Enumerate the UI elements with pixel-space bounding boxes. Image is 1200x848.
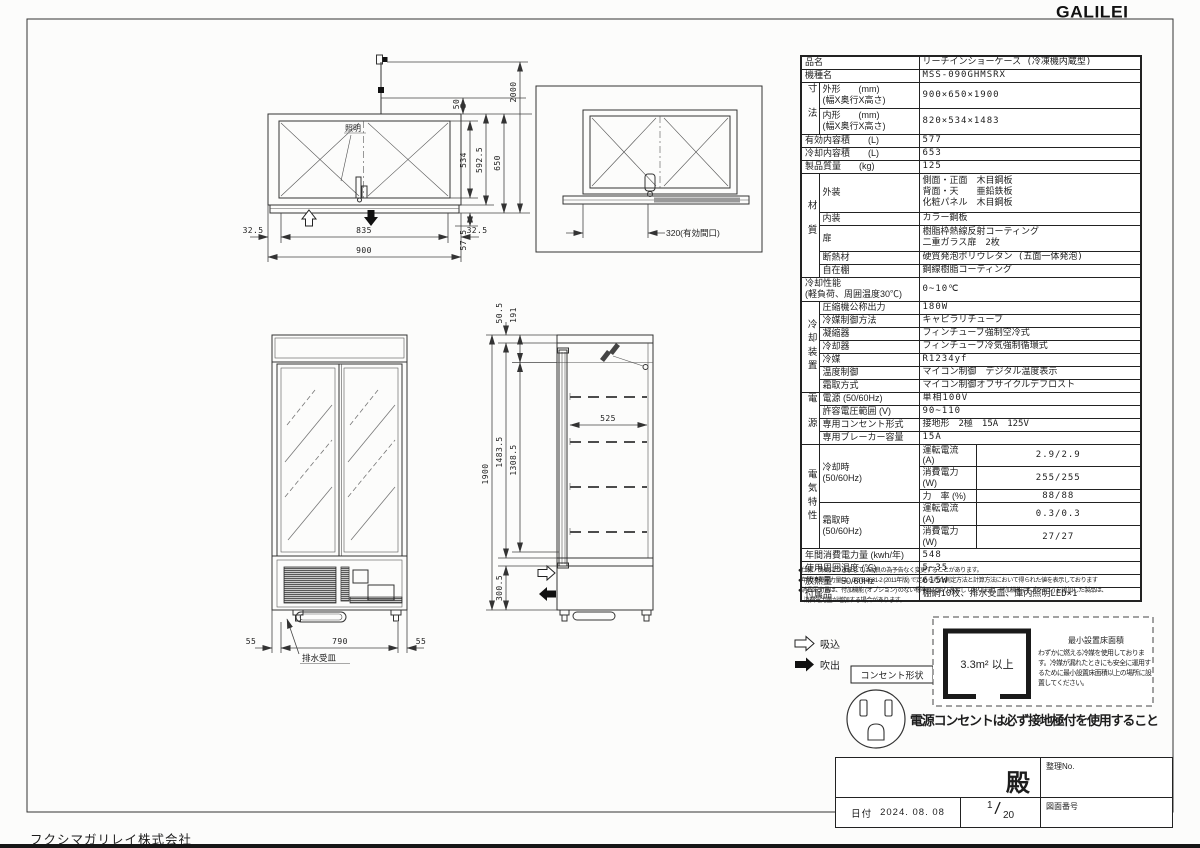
dim-50: 50 — [452, 99, 461, 109]
spec-power2-label: 消費電力 (W) — [919, 526, 976, 549]
dim-534: 534 — [459, 152, 468, 168]
dim-835: 835 — [356, 226, 372, 235]
spec-refrigerant-label: 冷媒 — [819, 353, 919, 366]
spec-weight-label: 製品質量 (kg) — [801, 160, 919, 173]
spec-power1-value: 255/255 — [976, 467, 1141, 490]
spec-refrigerant-control-label: 冷媒制御方法 — [819, 314, 919, 327]
plug-symbol-icon — [377, 55, 383, 64]
spec-evaporator-value: フィンチューブ冷気強制循環式 — [919, 340, 1141, 353]
control-number-label: 整理No. — [1041, 758, 1172, 798]
spec-run-current2-label: 運転電流 (A) — [919, 503, 976, 526]
spec-group-electrical: 電気特性 — [801, 444, 819, 549]
dim-32-5-right: 32.5 — [467, 226, 488, 235]
spec-insulation-label: 断熱材 — [819, 251, 919, 264]
side-view: 525 50.5 191 1900 1483.5 1308.5 300.5 — [481, 303, 653, 621]
dim-55-right: 55 — [416, 637, 426, 646]
sheet-slash: / — [994, 799, 1001, 819]
drain-pan-label: 排水受皿 — [302, 653, 337, 663]
spec-refrigerant-value: R1234yf — [919, 353, 1141, 366]
spec-group-cooling-unit: 冷却装置 — [801, 301, 819, 392]
spec-defrost-value: マイコン制御オフサイクルデフロスト — [919, 379, 1141, 392]
spec-cooling-volume-label: 冷却内容積 (L) — [801, 147, 919, 160]
note-line: ●消費電力量は、付加機能 (オプション) のない標準品により表示しております。付… — [798, 586, 1170, 596]
spec-weight-value: 125 — [919, 160, 1141, 173]
dim-55-left: 55 — [246, 637, 256, 646]
sheet-number-cell: 1 / 20 — [961, 798, 1041, 827]
dim-300-5: 300.5 — [495, 575, 504, 601]
date-cell: 日付 2024. 08. 08 — [836, 798, 961, 827]
spec-defrost-mode-label: 霜取時 (50/60Hz) — [819, 503, 919, 549]
sheet-denominator: 20 — [1003, 810, 1014, 821]
spec-run-current2-value: 0.3/0.3 — [976, 503, 1141, 526]
spec-breaker-label: 専用ブレーカー容量 — [819, 431, 919, 444]
power-plug-icon — [847, 690, 905, 748]
title-block: 殿 整理No. 日付 2024. 08. 08 1 / 20 図面番号 — [835, 757, 1173, 828]
drawing-page: 照明 50 534 592.5 650 2000 57.5 32.5 — [0, 0, 1200, 848]
spec-temp-control-label: 温度制御 — [819, 366, 919, 379]
vent-grille — [284, 567, 336, 603]
dim-592-5: 592.5 — [475, 147, 484, 173]
blowout-legend-icon — [795, 658, 814, 672]
dim-32-5-left: 32.5 — [243, 226, 264, 235]
spec-model-label: 機種名 — [801, 69, 919, 82]
spec-cooling-performance-value: 0~10℃ — [919, 277, 1141, 301]
dim-900: 900 — [356, 246, 372, 255]
spec-annual-power-label: 年間消費電力量 (kwh/年) — [801, 549, 919, 562]
ground-warning-text: 電源コンセントは必ず接地極付を使用すること — [910, 710, 1178, 729]
dim-525: 525 — [600, 414, 616, 423]
spec-insulation-value: 硬質発泡ポリウレタン (五面一体発泡) — [919, 251, 1141, 264]
dim-50-5: 50.5 — [495, 303, 504, 324]
addressee-cell: 殿 — [836, 758, 1041, 798]
notes-block: ●仕様・外観につきましては改良の為予告なく変更することがあります。 ●年間消費電… — [798, 566, 1170, 606]
spec-voltage-range-value: 90~110 — [919, 405, 1141, 418]
spec-outer-dim-value: 900×650×1900 — [919, 82, 1141, 108]
dim-650: 650 — [493, 155, 502, 171]
dim-790: 790 — [332, 637, 348, 646]
spec-door-label: 扉 — [819, 225, 919, 251]
spec-cooling-mode-label: 冷却時 (50/60Hz) — [819, 444, 919, 503]
spec-cooling-performance-label: 冷却性能 (軽負荷、周囲温度30℃) — [801, 277, 919, 301]
min-area-title: 最小設置床面積 — [1068, 635, 1124, 645]
suction-arrow-icon — [302, 210, 316, 226]
plan-view-open: 320(有効間口) — [536, 86, 762, 252]
spec-door-value: 樹脂枠熱線反射コーティング 二重ガラス扉 2枚 — [919, 225, 1141, 251]
blowout-arrow-side-icon — [539, 587, 556, 601]
plan-view: 照明 50 534 592.5 650 2000 57.5 32.5 — [243, 55, 532, 262]
spec-inner-dim-value: 820×534×1483 — [919, 108, 1141, 134]
blowout-arrow-icon — [364, 210, 378, 226]
dim-191: 191 — [509, 307, 518, 323]
spec-temp-control-value: マイコン制御 デジタル温度表示 — [919, 366, 1141, 379]
spec-table: 品名リーチインショーケース (冷凍機内蔵型) 機種名MSS-090GHMSRX … — [800, 55, 1142, 602]
spec-shelf-value: 鋼線樹脂コーティング — [919, 264, 1141, 277]
spec-outlet-type-value: 接地形 2極 15A 125V — [919, 418, 1141, 431]
spec-compressor-value: 180W — [919, 301, 1141, 314]
spec-breaker-value: 15A — [919, 431, 1141, 444]
dim-effective-opening: 320(有効間口) — [666, 228, 720, 238]
spec-effective-volume-label: 有効内容積 (L) — [801, 134, 919, 147]
dim-1900: 1900 — [481, 464, 490, 485]
spec-exterior-value: 側面・正面 木目鋼板 背面・天 亜鉛鉄板 化粧パネル 木目鋼板 — [919, 173, 1141, 212]
spec-annual-power-value: 548 — [919, 549, 1141, 562]
spec-group-power: 電源 — [801, 392, 819, 444]
spec-power1-label: 消費電力 (W) — [919, 467, 976, 490]
light-label: 照明 — [345, 124, 361, 133]
spec-compressor-label: 圧縮機公称出力 — [819, 301, 919, 314]
spec-power-factor-label: 力 率 (%) — [919, 490, 976, 503]
spec-condenser-value: フィンチューブ強制空冷式 — [919, 327, 1141, 340]
spec-run-current1-label: 運転電流 (A) — [919, 444, 976, 467]
outlet-shape-label: コンセント形状 — [860, 670, 923, 681]
spec-interior-label: 内装 — [819, 212, 919, 225]
page-edge-bar — [0, 844, 1200, 848]
date-value: 2024. 08. 08 — [880, 807, 945, 818]
dim-1483-5: 1483.5 — [495, 436, 504, 467]
date-label: 日付 — [851, 806, 872, 820]
note-line: ●年間消費電力量は、JIS B 8631-2 (2011年版) で定められた測定… — [798, 576, 1170, 586]
dim-2000: 2000 — [509, 82, 518, 103]
dim-1308-5: 1308.5 — [509, 444, 518, 475]
spec-run-current1-value: 2.9/2.9 — [976, 444, 1141, 467]
spec-power2-value: 27/27 — [976, 526, 1141, 549]
airflow-legend: 吸込 吹出 コンセント形状 — [795, 637, 933, 684]
spec-exterior-label: 外装 — [819, 173, 919, 212]
note-line: 消費電力量が増加する場合があります。 — [798, 596, 1170, 606]
suction-arrow-side-icon — [538, 566, 555, 580]
spec-model-value: MSS-090GHMSRX — [919, 69, 1141, 82]
spec-voltage-label: 電源 (50/60Hz) — [819, 392, 919, 405]
blowout-label: 吹出 — [820, 659, 840, 672]
spec-interior-value: カラー鋼板 — [919, 212, 1141, 225]
spec-evaporator-label: 冷却器 — [819, 340, 919, 353]
spec-name-label: 品名 — [801, 56, 919, 69]
spec-outlet-type-label: 専用コンセント形式 — [819, 418, 919, 431]
spec-effective-volume-value: 577 — [919, 134, 1141, 147]
spec-outer-dim-label: 外形 (mm) (幅X奥行X高さ) — [819, 82, 919, 108]
suction-legend-icon — [795, 637, 814, 651]
spec-refrigerant-control-value: キャピラリチューブ — [919, 314, 1141, 327]
spec-name-value: リーチインショーケース (冷凍機内蔵型) — [919, 56, 1141, 69]
spec-group-dimensions: 寸法 — [801, 82, 819, 134]
drawing-number-label: 図面番号 — [1041, 798, 1172, 827]
spec-defrost-label: 霜取方式 — [819, 379, 919, 392]
note-line: ●仕様・外観につきましては改良の為予告なく変更することがあります。 — [798, 566, 1170, 576]
spec-shelf-label: 自在棚 — [819, 264, 919, 277]
min-area-note: わずかに燃える冷媒を使用しております。冷媒が漏れたときにも安全に運用するために最… — [1038, 649, 1152, 689]
min-area-value: 3.3m² 以上 — [960, 658, 1013, 671]
spec-voltage-value: 単相100V — [919, 392, 1141, 405]
spec-cooling-volume-value: 653 — [919, 147, 1141, 160]
front-view: 排水受皿 55 790 55 — [246, 335, 426, 664]
galilei-logo: GALILEI — [1056, 3, 1129, 23]
sheet-numerator: 1 — [987, 800, 993, 811]
suction-label: 吸込 — [820, 639, 840, 651]
spec-condenser-label: 凝縮器 — [819, 327, 919, 340]
spec-power-factor-value: 88/88 — [976, 490, 1141, 503]
spec-inner-dim-label: 内形 (mm) (幅X奥行X高さ) — [819, 108, 919, 134]
spec-voltage-range-label: 許容電圧範囲 (V) — [819, 405, 919, 418]
spec-group-material: 材質 — [801, 173, 819, 277]
